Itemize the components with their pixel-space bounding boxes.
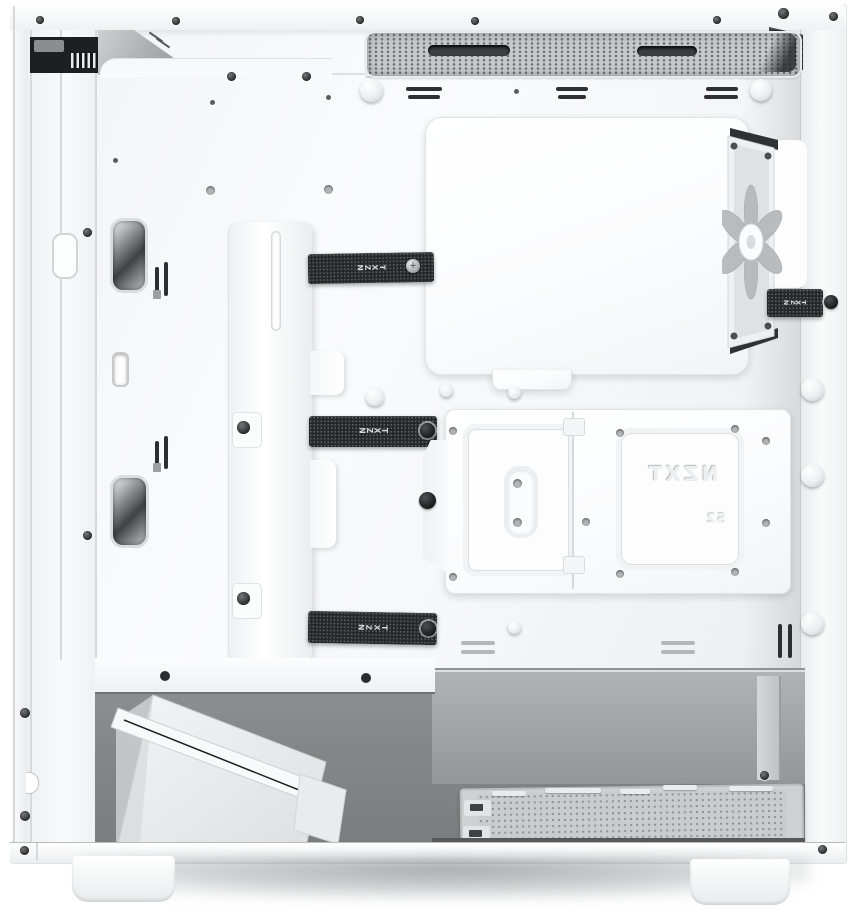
psu-vent-perforation [478, 790, 787, 842]
channel-slot [271, 231, 281, 331]
rear-exhaust-fan [722, 124, 784, 362]
screw-icon [237, 421, 250, 434]
cable-tie-notch [52, 233, 78, 279]
front-column [28, 30, 95, 844]
bracket-hole [762, 437, 770, 445]
io-connector-block [34, 40, 64, 52]
strap-label: NZXT [357, 623, 388, 633]
channel-side-tab [310, 351, 344, 395]
hinge-tab [563, 556, 585, 574]
screw-icon [829, 12, 838, 21]
screw-icon [356, 16, 364, 24]
cable-grommet-cutout [110, 218, 148, 293]
cable-grommet-cutout [110, 475, 149, 548]
embossed-nzxt-logo: NZXT [646, 462, 718, 486]
embossed-mark: S2 [706, 512, 726, 527]
tray-vent-dash [406, 87, 442, 91]
chamber-back-wall [432, 670, 805, 784]
channel-side-tab [310, 460, 336, 548]
strap-screw-silver: + [406, 259, 420, 273]
floor-clip-slot [469, 830, 482, 837]
mesh-corner-shadow [755, 33, 796, 72]
pin-hole [326, 95, 331, 100]
screw-icon [172, 17, 180, 25]
bracket-hole [449, 427, 457, 435]
screw-icon [237, 592, 250, 605]
bracket-hole [731, 425, 739, 433]
strap-label: NZXT [356, 263, 387, 273]
edge-slot [661, 641, 695, 645]
thumbscrew [419, 492, 436, 509]
mesh-slot [637, 46, 697, 56]
cpu-cover-tab [492, 370, 572, 390]
drive-bracket-right-recess [616, 428, 744, 570]
drive-slot-hole [513, 479, 522, 488]
front-column-seam [60, 30, 62, 660]
small-slot [112, 352, 129, 387]
tray-hole [324, 185, 333, 194]
bracket-hole [449, 573, 457, 581]
strap-label: NZXT [358, 427, 389, 436]
rubber-standoff [750, 79, 772, 101]
cpu-cutout-cover [425, 117, 749, 375]
chamber-right-rail [757, 676, 781, 780]
rubber-standoff [801, 464, 824, 487]
tray-vent-dash [706, 87, 738, 91]
pin-hole [113, 158, 118, 163]
floor-clip-slot [470, 804, 483, 811]
tie-slot [164, 436, 168, 469]
tie-clip [153, 463, 161, 472]
screw-icon [760, 771, 769, 780]
rubber-standoff-small [508, 621, 521, 634]
cable-strap-bottom: NZXT [308, 611, 438, 645]
screw-icon [778, 8, 789, 19]
cable-strap-rear: NZXT [767, 289, 823, 317]
bottom-rail-seam [36, 843, 38, 861]
case-foot-left [72, 856, 175, 902]
bottom-fan-duct [98, 660, 398, 850]
rubber-standoff-small [440, 384, 453, 397]
screw-icon [20, 846, 29, 855]
floor-clip [729, 786, 773, 791]
front-seam [13, 6, 15, 860]
edge-slot [661, 650, 695, 654]
floor-clip [492, 791, 526, 796]
tray-vent-dash [558, 95, 586, 99]
screw-icon [471, 17, 479, 25]
tie-clip [153, 290, 161, 299]
bracket-hole [616, 570, 624, 578]
drive-slot-oval [504, 466, 538, 538]
tray-vent-dash [704, 95, 738, 99]
case-foot-right [690, 859, 790, 905]
screw-icon [36, 16, 44, 24]
tie-slot [164, 262, 168, 296]
edge-slot [461, 650, 495, 654]
drive-slot-hole [513, 518, 522, 527]
tray-hole [206, 186, 215, 195]
product-photo-pc-case-interior: NZXT + NZXT NZXT NZXT S2 [0, 0, 853, 922]
strap-screw-black [420, 423, 435, 438]
cable-strap-middle: NZXT [309, 416, 437, 447]
tie-slot [778, 624, 782, 658]
screw-icon [83, 228, 92, 237]
tray-vent-dash [556, 87, 588, 91]
pin-hole [210, 100, 215, 105]
floor-clip [663, 785, 697, 790]
strap-peg-black [421, 621, 436, 636]
pin-hole [514, 89, 519, 94]
screw-icon [713, 16, 721, 24]
floor-clip [545, 788, 601, 793]
rubber-standoff-small [508, 386, 521, 399]
front-column-seam [30, 30, 32, 842]
tie-slot [788, 624, 792, 658]
mesh-slot [428, 45, 510, 56]
floor-clip [620, 789, 650, 794]
rubber-standoff [366, 388, 384, 406]
bracket-hole [731, 568, 739, 576]
strap-peg-black [824, 295, 838, 309]
screw-icon [302, 72, 311, 81]
rubber-standoff [360, 79, 383, 102]
hinge-tab [563, 418, 585, 436]
bracket-hole [616, 429, 624, 437]
tray-vent-dash [408, 95, 440, 99]
screw-icon [818, 845, 827, 854]
bracket-hole [762, 519, 770, 527]
io-connector-comb [71, 53, 101, 68]
tray-left-edge [95, 30, 97, 670]
edge-slot [461, 641, 495, 645]
screw-icon [20, 811, 30, 821]
screw-icon [83, 531, 92, 540]
rubber-standoff [801, 378, 824, 401]
bracket-hole [582, 518, 590, 526]
rubber-standoff [801, 612, 824, 635]
screw-icon [227, 72, 236, 81]
strap-label: NZXT [783, 299, 807, 307]
tray-corner-round [100, 58, 332, 77]
screw-icon [20, 708, 30, 718]
